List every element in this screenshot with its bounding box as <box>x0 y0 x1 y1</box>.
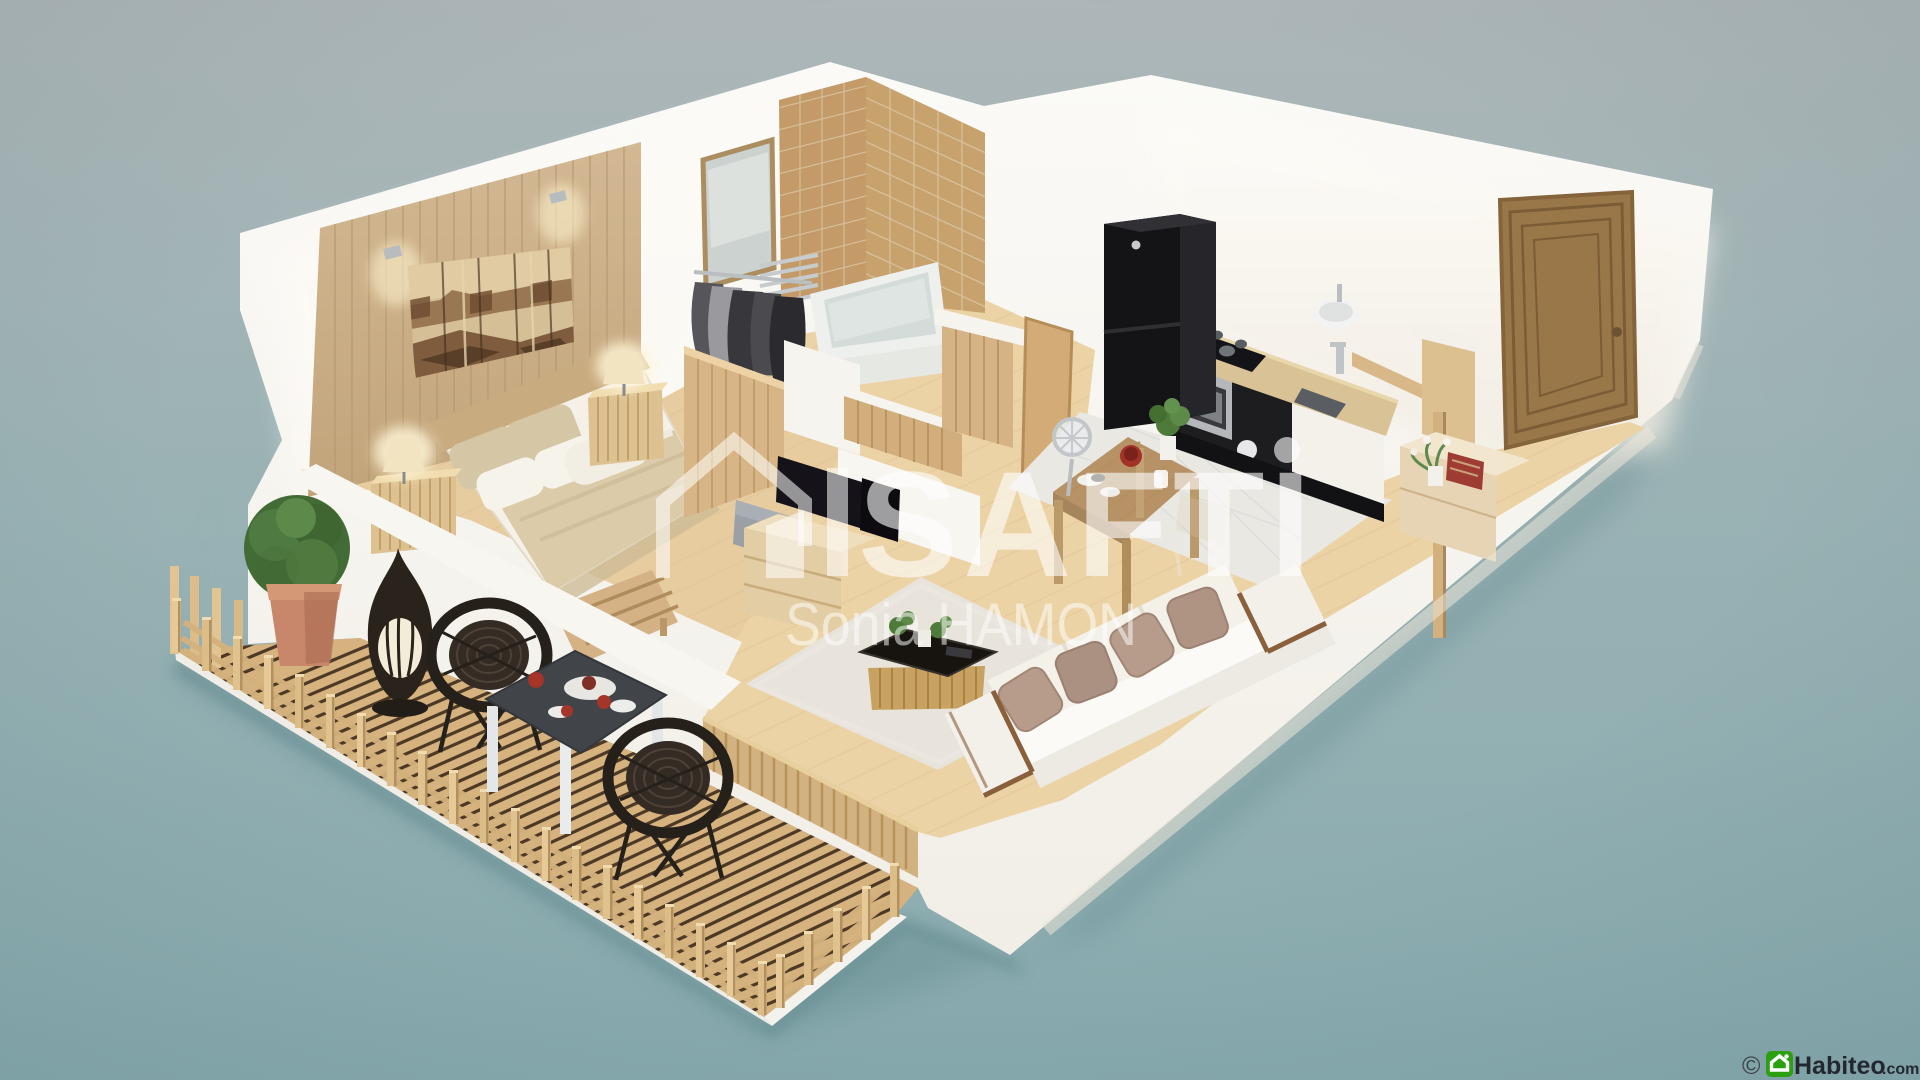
svg-text:Habiteo: Habiteo <box>1794 1052 1886 1080</box>
svg-text:Sonia HAMON: Sonia HAMON <box>785 591 1137 658</box>
svg-text:©: © <box>1742 1052 1761 1080</box>
svg-text:.com: .com <box>1882 1061 1919 1078</box>
svg-text:SAFTI: SAFTI <box>858 440 1316 608</box>
